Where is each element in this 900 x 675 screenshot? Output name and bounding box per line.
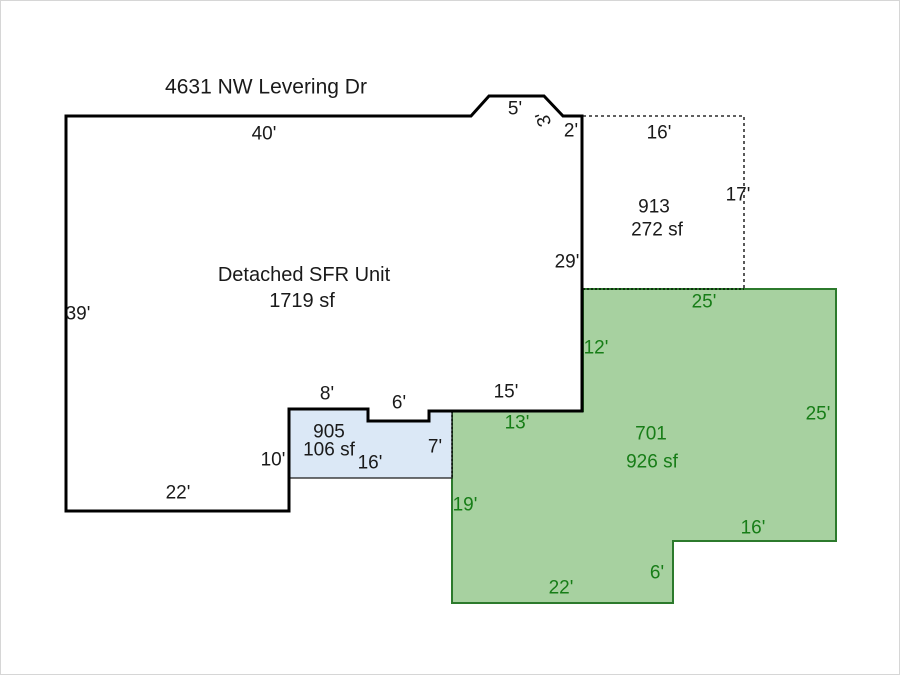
dim-701-bottom: 22'	[549, 578, 574, 599]
area-701-sf: 926 sf	[626, 452, 678, 473]
dim-main-bump-top: 5'	[508, 99, 522, 120]
area-701-code: 701	[635, 424, 667, 445]
dim-701-top-left: 13'	[505, 413, 530, 434]
main-unit-sf: 1719 sf	[269, 290, 335, 312]
dim-701-upper-left: 12'	[584, 338, 609, 359]
dim-701-step: 6'	[650, 563, 664, 584]
dim-main-right: 29'	[555, 252, 580, 273]
dim-main-notch-right: 15'	[494, 382, 519, 403]
main-unit-label: Detached SFR Unit	[218, 264, 391, 286]
dim-main-left: 39'	[66, 304, 91, 325]
area-905-sf: 106 sf	[303, 440, 355, 461]
property-sketch: 4631 NW Levering Dr 40' 5' 3' 2' 16' 17'…	[1, 1, 900, 675]
dim-905-bottom: 16'	[358, 453, 383, 474]
area-913-code: 913	[638, 197, 670, 218]
dim-913-top: 16'	[647, 123, 672, 144]
dim-913-right: 17'	[726, 185, 751, 206]
street-address-title: 4631 NW Levering Dr	[165, 76, 367, 99]
dim-main-step-right: 10'	[261, 450, 286, 471]
sketch-page: 4631 NW Levering Dr 40' 5' 3' 2' 16' 17'…	[0, 0, 900, 675]
area-913-sf: 272 sf	[631, 220, 683, 241]
dim-701-top: 25'	[692, 292, 717, 313]
dim-701-lower-right: 16'	[741, 518, 766, 539]
dim-main-bump-end: 2'	[564, 121, 578, 142]
dim-905-right: 7'	[428, 437, 442, 458]
dim-main-bottom: 22'	[166, 483, 191, 504]
dim-main-top: 40'	[252, 124, 277, 145]
dim-701-right: 25'	[806, 404, 831, 425]
dim-main-notch-left: 8'	[320, 384, 334, 405]
dim-main-notch-mid: 6'	[392, 393, 406, 414]
dim-701-left: 19'	[453, 495, 478, 516]
